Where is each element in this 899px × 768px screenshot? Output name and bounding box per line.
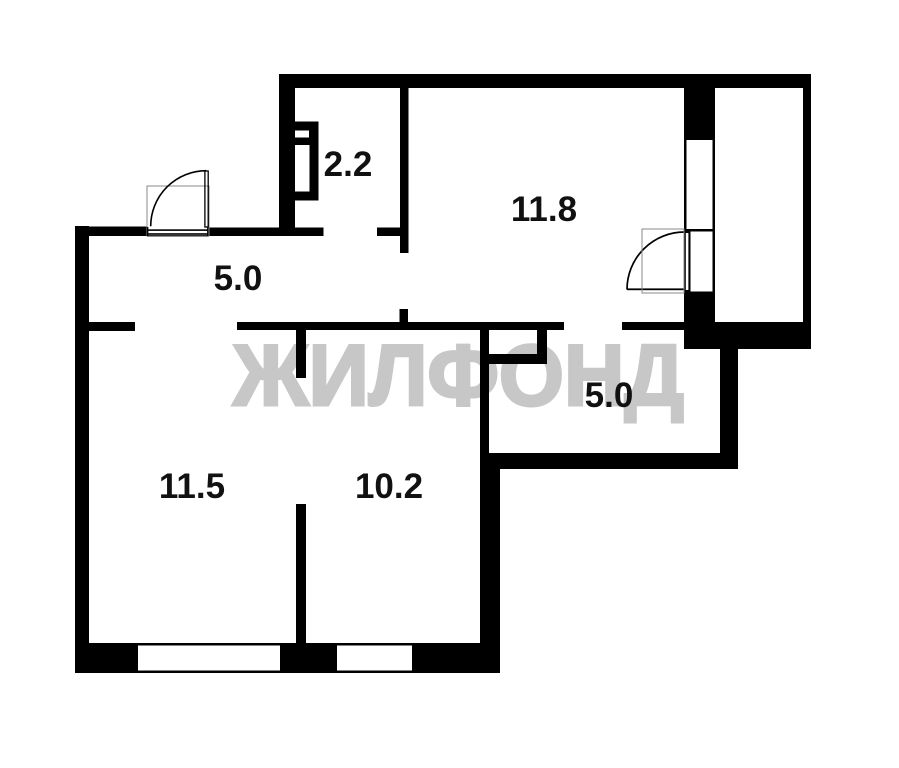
svg-text:11.8: 11.8 <box>511 190 577 229</box>
svg-text:10.2: 10.2 <box>355 467 423 506</box>
svg-text:5.0: 5.0 <box>214 259 263 298</box>
svg-text:5.0: 5.0 <box>585 376 634 415</box>
svg-text:11.5: 11.5 <box>159 467 225 506</box>
svg-text:2.2: 2.2 <box>324 145 373 184</box>
